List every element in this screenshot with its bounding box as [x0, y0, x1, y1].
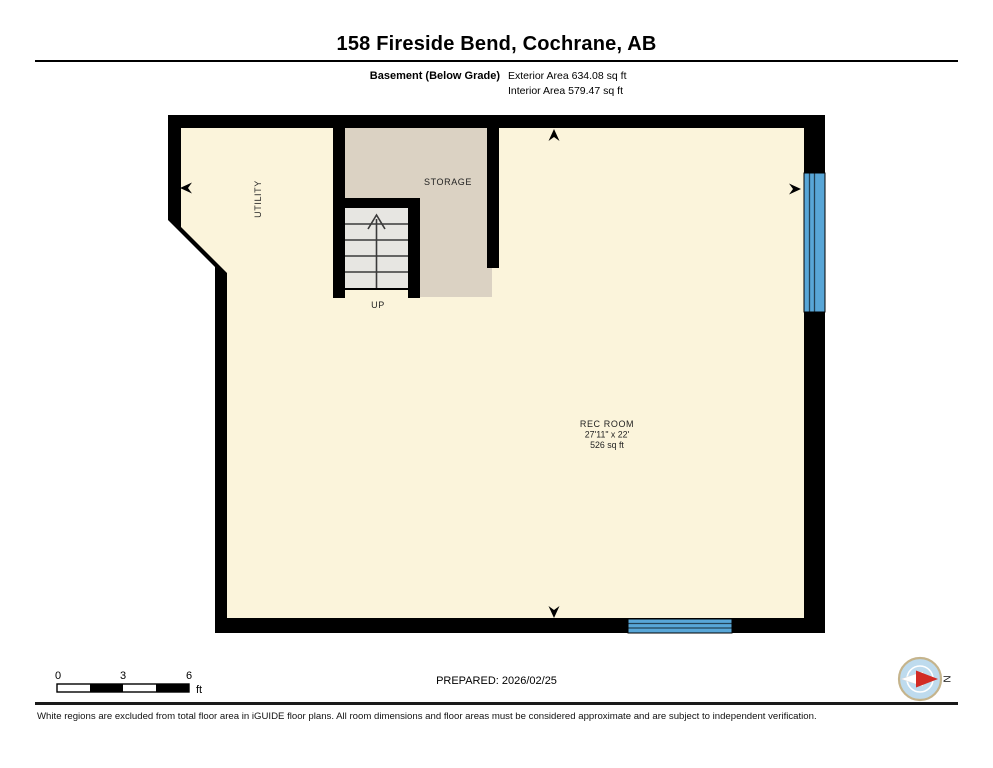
rec-room-label: REC ROOM	[580, 419, 634, 429]
rec-room-dimensions: 27'11" x 22'	[585, 430, 630, 440]
storage-area-lower	[420, 128, 492, 297]
disclaimer-text: White regions are excluded from total fl…	[37, 711, 967, 723]
utility-label: UTILITY	[253, 180, 263, 218]
stairs-up-label: UP	[371, 300, 385, 310]
window-right	[804, 173, 825, 312]
stairs-top-wall	[333, 198, 420, 208]
footer-divider	[35, 702, 958, 705]
floorplan-drawing: UTILITY STORAGE UP REC ROOM 27'11" x 22'…	[0, 0, 993, 768]
stairs-left-wall	[333, 128, 345, 298]
rec-room-area: 526 sq ft	[590, 440, 624, 450]
storage-right-wall	[487, 115, 499, 268]
floorplan-page: 158 Fireside Bend, Cochrane, AB Basement…	[0, 0, 993, 768]
stairs-right-wall	[408, 198, 420, 298]
storage-label: STORAGE	[424, 177, 472, 187]
prepared-date: PREPARED: 2026/02/25	[0, 675, 993, 687]
window-bottom	[628, 619, 732, 633]
